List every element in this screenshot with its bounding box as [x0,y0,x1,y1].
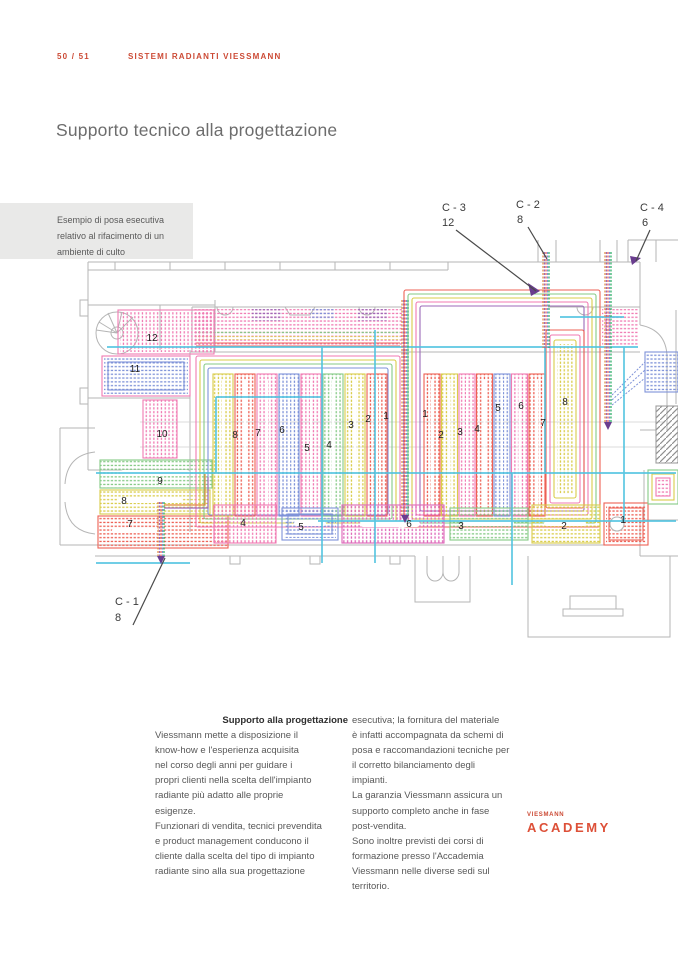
support-text-line: Sono inoltre previsti dei corsi di [352,834,512,849]
support-text-line: cliente dalla scelta del tipo di impiant… [155,849,348,864]
connector-labels: C - 3 12 C - 2 8 C - 4 6 C - 1 8 [115,199,664,624]
blue-fan-pipes [612,362,645,405]
left-nave-circuits [213,374,387,516]
leader-c3 [456,230,536,291]
connector-name: C - 3 [442,202,466,214]
zone-label: 8 [562,397,568,408]
portico-purple-patch [358,309,388,321]
zone-label: 4 [474,424,480,435]
support-text-line: radiante più adatto alle proprie [155,788,348,803]
zone-label: 2 [561,521,567,532]
portico-purple-patch [252,309,282,321]
zone-label: 5 [495,403,501,414]
viessmann-academy-logo: VIESMANN ACADEMY [527,812,611,835]
support-column-right: esecutiva; la fornitura del materiale è … [352,713,512,894]
zone-label: 6 [279,425,285,436]
portico-yellow-line [196,336,400,340]
support-text-line: formazione presso l'Accademia [352,849,512,864]
portico-blue-patch [310,309,334,319]
zone-label: 12 [146,333,158,344]
zone-label: 3 [348,420,354,431]
bundle-center [402,300,408,515]
connector-count: 6 [642,217,648,229]
portico-green-line [196,330,400,334]
viessmann-wordmark: VIESMANN [527,812,611,818]
zone-label: 5 [304,443,310,454]
zone-label: 4 [326,440,332,451]
altar-step [563,609,623,616]
support-text-line: il corretto bilanciamento degli impianti… [352,758,512,788]
zone-label: 9 [157,476,163,487]
support-text-line: radiante sino alla sua progettazione [155,864,348,879]
support-text-line: e product management conducono il [155,834,348,849]
leader-c4 [636,230,650,261]
zone-right-blue [645,352,678,392]
zone-label: 2 [438,430,444,441]
zone-label: 3 [457,427,463,438]
bundle-c2 [543,252,549,348]
support-text-line: è infatti accompagnata da schemi di [352,728,512,743]
hatched-block [656,406,678,463]
zone-11 [104,358,188,394]
bundle-c4 [605,252,611,422]
connector-count: 8 [115,612,121,624]
support-text-line: Viessmann nelle diverse sedi sul [352,864,512,879]
connector-label-c3: C - 3 12 [442,202,466,229]
brochure-page: 50 / 51 SISTEMI RADIANTI VIESSMANN Suppo… [0,0,678,959]
support-text-line: territorio. [352,879,512,894]
connector-name: C - 1 [115,596,139,608]
zone-label: 8 [232,430,238,441]
support-text-line: propri clienti nella scelta dell'impiant… [155,773,348,788]
connector-name: C - 2 [516,199,540,211]
support-heading: Supporto alla progettazione [155,713,348,728]
connector-name: C - 4 [640,202,664,214]
zone-8-core [118,498,182,503]
connector-count: 8 [517,214,523,226]
zone-label: 7 [255,428,261,439]
zone-right-multi-core [656,478,670,496]
zone-label: 3 [458,521,464,532]
zone-label: 5 [298,522,304,533]
zone-8-right-rings [546,330,584,508]
support-text-line: posa e raccomandazioni tecniche per [352,743,512,758]
connector-count: 12 [442,217,454,229]
leader-c1 [133,558,165,625]
zone-label: 11 [130,364,141,375]
support-text-line: nel corso degli anni per guidare i [155,758,348,773]
zone-label: 2 [365,414,371,425]
zone-7-core [112,528,158,533]
zone-label: 7 [127,519,133,530]
support-text-line: know-how e l'esperienza acquisita [155,743,348,758]
support-text-line: Viessmann mette a disposizione il [155,728,348,743]
altar-table [570,596,616,609]
zone-label: 1 [620,515,626,526]
zone-label: 6 [406,519,412,530]
connector-label-c4: C - 4 6 [640,202,664,229]
floor-plan-drawing: 12 11 10 9 8 7 8 7 6 5 4 3 2 1 1 2 3 4 5… [0,0,678,700]
zone-label: 8 [121,496,127,507]
zone-label: 1 [422,409,428,420]
support-text-line: post-vendita. [352,819,512,834]
zone-12 [120,312,212,352]
zone-label: 10 [156,429,168,440]
support-text-line: supporto completo anche in fase [352,804,512,819]
zone-label: 6 [518,401,524,412]
academy-wordmark: ACADEMY [527,820,611,835]
support-text-line: esigenze. [155,804,348,819]
connector-label-c2: C - 2 8 [516,199,540,226]
support-column-left: Supporto alla progettazione Viessmann me… [155,713,348,879]
right-nave-circuits [424,374,545,516]
zone-label: 1 [383,411,389,422]
zone-label: 4 [240,518,246,529]
support-text-line: Funzionari di vendita, tecnici prevendit… [155,819,348,834]
support-text-line: esecutiva; la fornitura del materiale [352,713,512,728]
zone-label: 7 [540,418,546,429]
support-text-line: La garanzia Viessmann assicura un [352,788,512,803]
